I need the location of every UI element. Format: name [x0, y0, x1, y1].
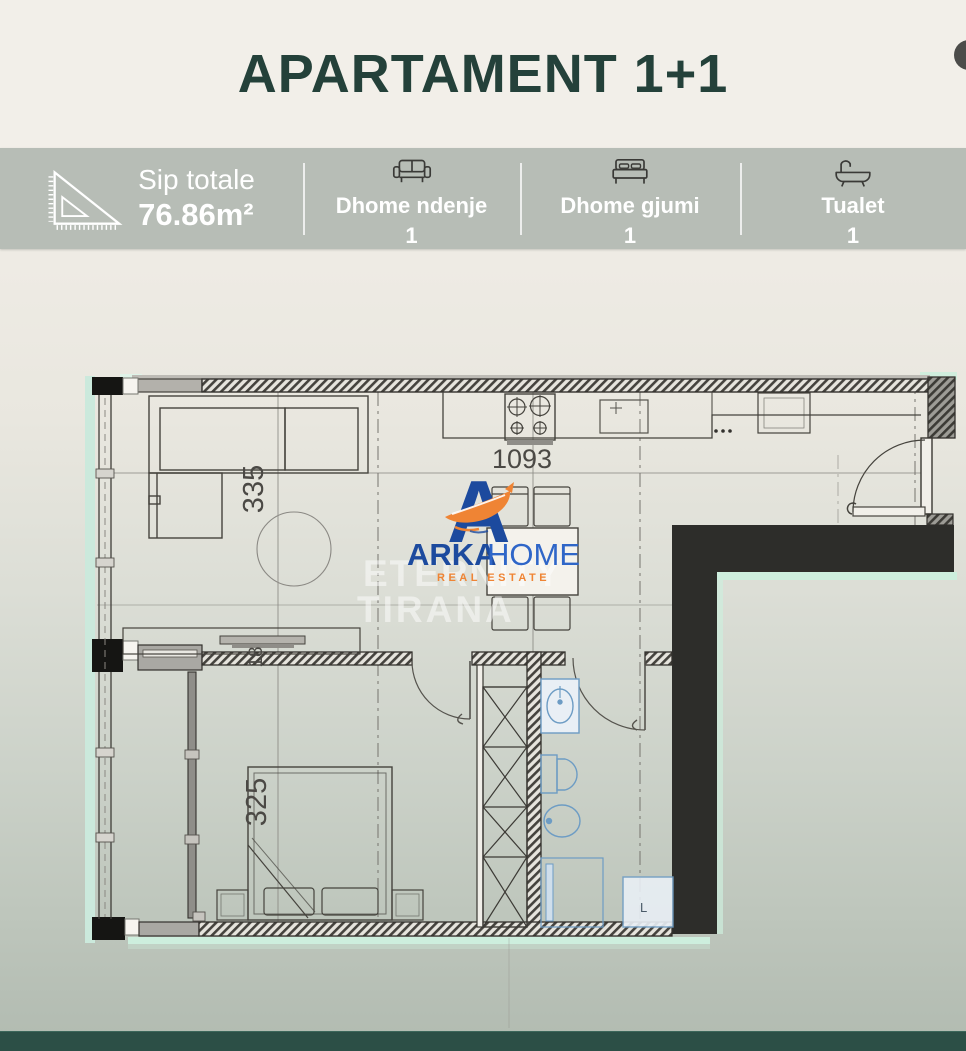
wardrobe [483, 687, 527, 927]
washing-machine [623, 877, 673, 927]
logo-brand-secondary: HOME [487, 537, 580, 572]
logo-brand-primary: ARKA [407, 537, 497, 572]
stats-divider [740, 163, 742, 235]
floor-plan: L 1093 335 325 18 ETERNITY TIRANA A ARKA… [0, 360, 966, 1050]
stat-label: Dhome ndenje [336, 194, 488, 218]
flyer-page: { "header": { "title": "APARTAMENT 1+1" … [0, 0, 966, 1050]
stat-living-rooms: Dhome ndenje 1 [303, 148, 520, 249]
stat-label: Dhome gjumi [560, 194, 699, 218]
dim-living: 335 [238, 465, 270, 513]
shower [541, 858, 603, 927]
ruler-triangle-icon [48, 167, 124, 231]
stats-divider [520, 163, 522, 235]
footer-bar [0, 1031, 966, 1051]
round-rug [257, 512, 331, 586]
watermark-line2: TIRANA [357, 589, 515, 630]
bathtub-icon [825, 157, 881, 188]
stat-value: 76.86m² [138, 196, 255, 233]
nightstands [217, 890, 423, 920]
bedroom-door [412, 661, 470, 724]
bathroom-fixtures [541, 679, 673, 927]
stat-total-area: Sip totale 76.86m² [0, 148, 303, 249]
kitchen-sink [600, 400, 648, 433]
dim-bedroom: 325 [241, 778, 273, 826]
structural-black-wall [672, 525, 954, 934]
dim-wall: 18 [246, 646, 267, 667]
bidet [544, 805, 580, 837]
stat-value: 1 [847, 223, 859, 249]
counter-knobs [714, 429, 732, 433]
stats-band: Sip totale 76.86m² Dhome ndenje 1 [0, 148, 966, 249]
bed-icon [602, 157, 658, 188]
stat-label: Sip totale [138, 164, 255, 196]
stat-value: 1 [405, 223, 417, 249]
stat-value: 1 [624, 223, 636, 249]
stat-bedrooms: Dhome gjumi 1 [520, 148, 740, 249]
stat-label: Tualet [821, 194, 884, 218]
logo-tagline: REAL ESTATE [437, 572, 550, 584]
entrance-door [847, 440, 925, 516]
stat-toilets: Tualet 1 [740, 148, 966, 249]
header: APARTAMENT 1+1 [0, 0, 966, 148]
arka-home-logo: A ARKA HOME REAL ESTATE [407, 462, 580, 584]
page-title: APARTAMENT 1+1 [238, 43, 729, 105]
bathroom-door [573, 658, 645, 730]
sofa-icon [384, 157, 440, 188]
bathroom-sink [541, 679, 579, 733]
toilet [541, 755, 577, 793]
stats-divider [303, 163, 305, 235]
washer-label: L [640, 900, 647, 915]
